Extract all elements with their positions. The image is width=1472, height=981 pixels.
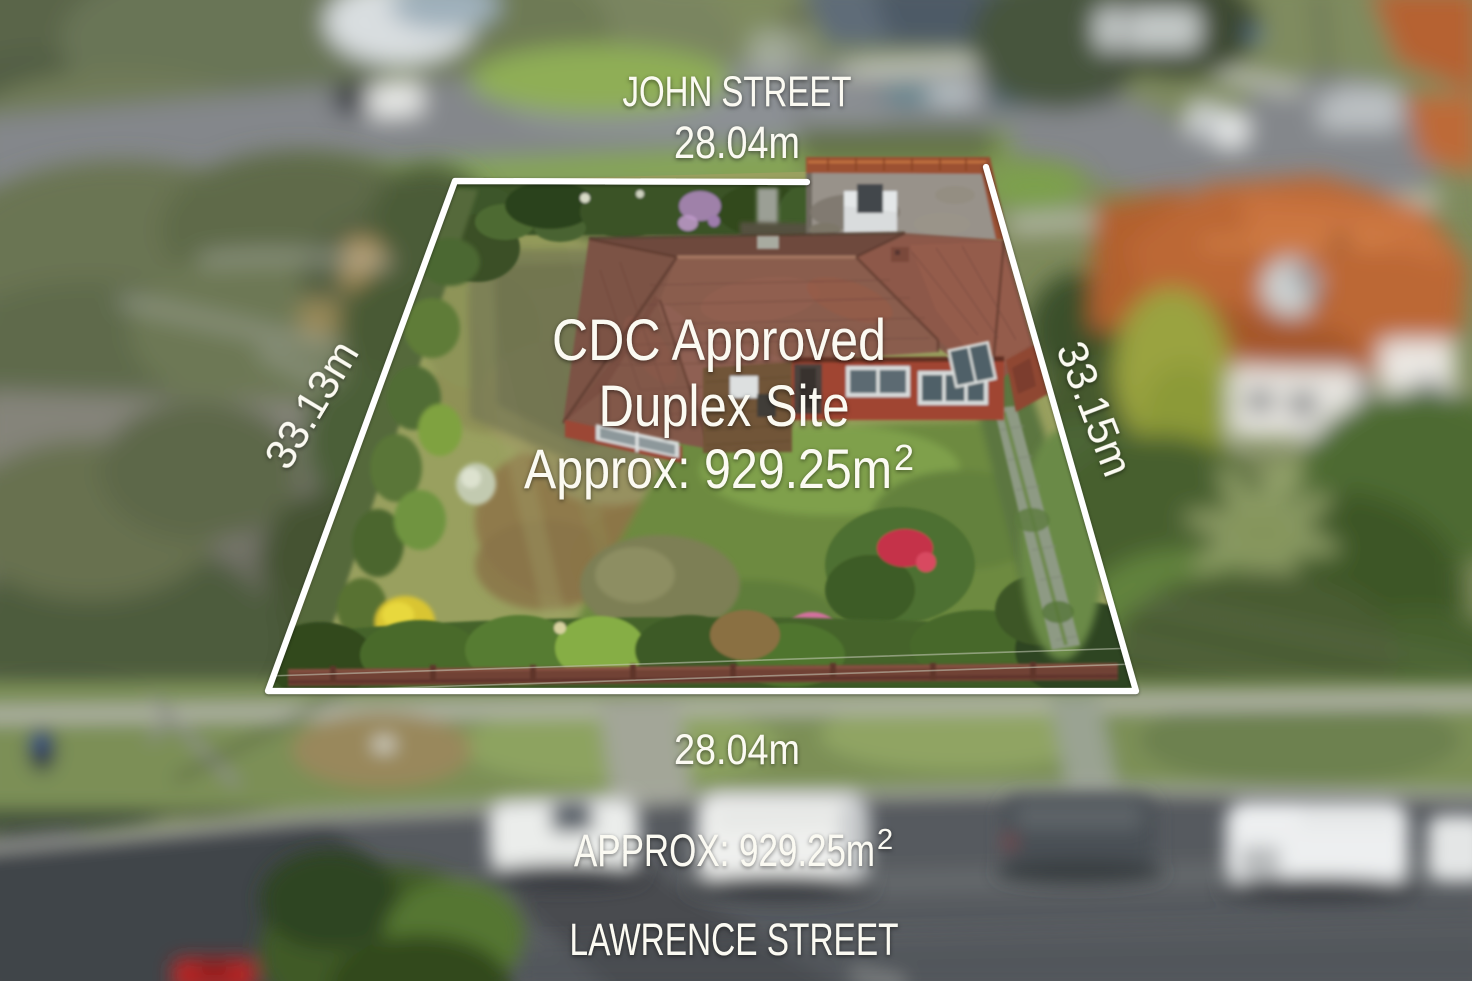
svg-text:2: 2	[877, 824, 893, 856]
svg-text:CDC Approved: CDC Approved	[552, 308, 886, 373]
svg-text:28.04m: 28.04m	[674, 726, 800, 774]
svg-text:2: 2	[894, 437, 914, 478]
svg-text:APPROX: 929.25m: APPROX: 929.25m	[574, 825, 875, 876]
svg-text:Duplex Site: Duplex Site	[599, 374, 850, 439]
svg-text:LAWRENCE STREET: LAWRENCE STREET	[570, 914, 899, 965]
svg-text:JOHN STREET: JOHN STREET	[623, 68, 852, 116]
svg-text:28.04m: 28.04m	[674, 117, 800, 168]
svg-text:Approx: 929.25m: Approx: 929.25m	[524, 437, 892, 500]
